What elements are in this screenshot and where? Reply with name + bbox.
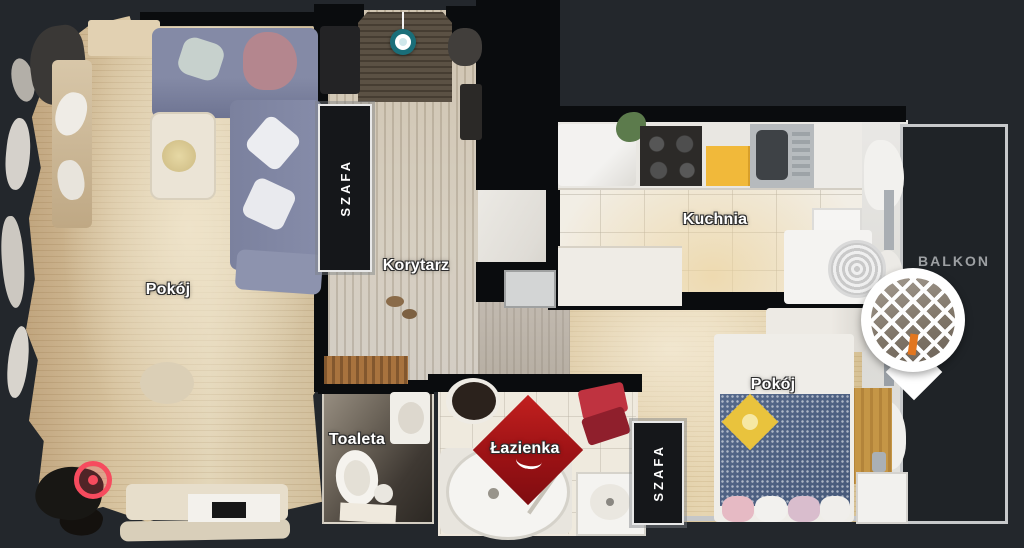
room-label-bedroom: Pokój: [751, 376, 796, 394]
stove: [640, 126, 702, 186]
bed-lamp-core: [742, 414, 758, 430]
cabinet: [88, 20, 160, 56]
wall: [140, 12, 326, 26]
kitchen-cabinet: [558, 246, 682, 306]
scan-edge-fragment: [2, 117, 33, 191]
balcony-photo-detail: [908, 334, 919, 356]
room-label-toilet: Toaleta: [329, 431, 385, 449]
doormat: [324, 356, 408, 384]
cutting-board: [706, 146, 754, 186]
nightstand: [856, 472, 908, 524]
sink-drainer: [792, 132, 810, 180]
shoes: [386, 296, 404, 307]
pillow: [722, 496, 754, 522]
floorplan-viewer: BALKON SZAFA SZAFA Pokój Korytarz Kuchni…: [0, 0, 1024, 548]
blanket: [243, 32, 297, 90]
sideboard: [52, 60, 92, 228]
room-label-corridor: Korytarz: [383, 257, 450, 275]
sofa-footrest: [235, 249, 324, 295]
pillow: [820, 496, 850, 522]
scan-edge-fragment: [0, 215, 28, 309]
kitchen-counter: [814, 122, 862, 188]
scan-edge-fragment: [3, 325, 33, 399]
tv-console-item: [212, 502, 246, 518]
balcony-photo-thumbnail: [871, 278, 955, 362]
toilet-dark: [452, 382, 496, 420]
shoes: [402, 309, 417, 319]
closet-top-zone: SZAFA: [318, 104, 372, 272]
closet-bottom-zone: SZAFA: [632, 421, 684, 525]
nightstand-lamp: [872, 452, 886, 472]
sink-basin: [756, 130, 788, 180]
window-glass: [884, 190, 894, 250]
wardrobe-mirror: [460, 84, 482, 140]
room-label-bathroom: Łazienka: [490, 440, 559, 458]
stool: [448, 28, 482, 66]
closet-bottom-label: SZAFA: [651, 444, 666, 502]
room-label-kitchen: Kuchnia: [683, 211, 748, 229]
camera-sweep-marker-core: [399, 38, 407, 46]
doormat: [358, 12, 452, 102]
shower-drain: [488, 488, 499, 499]
wall: [548, 106, 906, 122]
current-position-dot: [88, 475, 98, 485]
current-position-marker[interactable]: [74, 461, 112, 499]
flat-door-panel: [504, 270, 556, 308]
pillow: [788, 496, 820, 522]
balcony-view-pin[interactable]: [861, 268, 967, 400]
pouf: [140, 362, 194, 404]
toilet-sink-bowl: [398, 402, 424, 434]
bowl: [162, 140, 196, 172]
sink-drain-dot: [606, 498, 614, 506]
waste-bin: [374, 484, 393, 503]
balcony-label: BALKON: [918, 253, 990, 269]
pillow: [755, 496, 787, 522]
closet-top-label: SZAFA: [338, 159, 353, 217]
door-panel: [340, 503, 397, 524]
bench: [320, 26, 360, 94]
camera-sweep-marker[interactable]: [390, 29, 416, 55]
room-label-living: Pokój: [146, 281, 191, 299]
